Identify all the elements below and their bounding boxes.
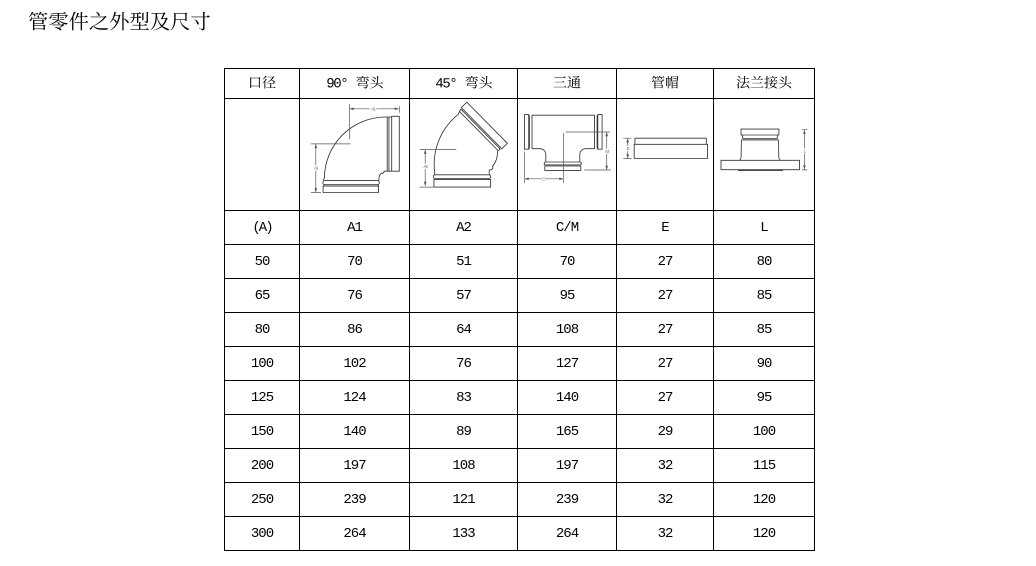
svg-text:M: M bbox=[605, 149, 609, 154]
